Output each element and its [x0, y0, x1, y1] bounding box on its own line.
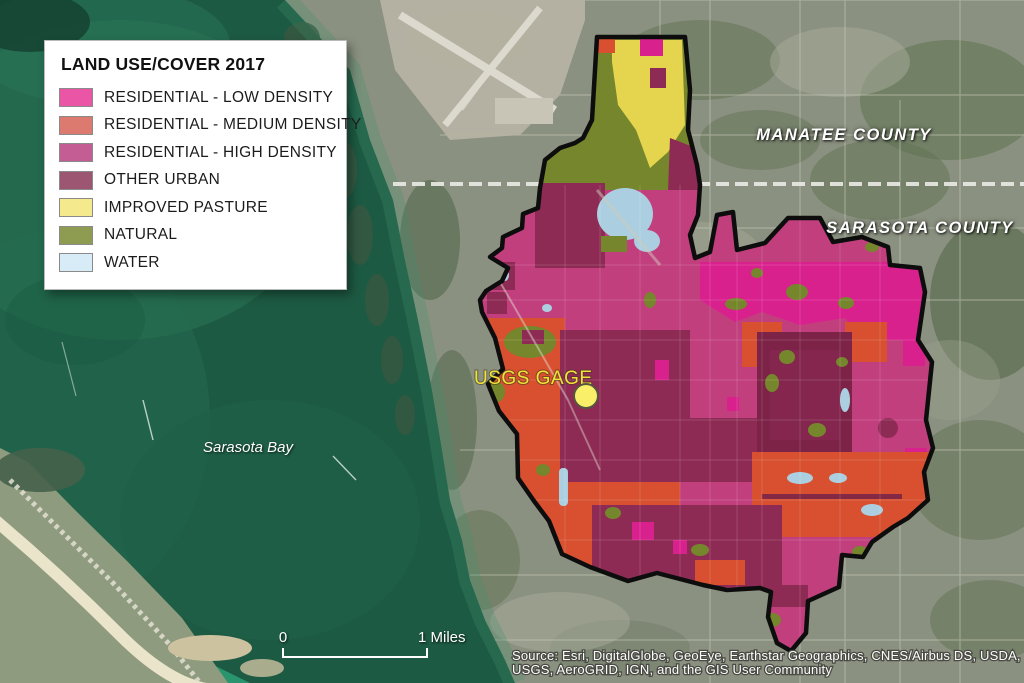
scale-zero-label: 0 — [279, 629, 287, 646]
sandbar — [168, 635, 252, 661]
legend-item-label: RESIDENTIAL - LOW DENSITY — [104, 89, 333, 107]
attribution-line2: USGS, AeroGRID, IGN, and the GIS User Co… — [512, 662, 832, 677]
legend-swatch — [59, 198, 93, 217]
legend-item-water: WATER — [59, 249, 332, 277]
legend-swatch — [59, 171, 93, 190]
legend-item-low-density: RESIDENTIAL - LOW DENSITY — [59, 84, 332, 112]
legend-item-label: NATURAL — [104, 226, 177, 244]
sarasota-bay-label: Sarasota Bay — [203, 439, 295, 456]
attribution-line1: Source: Esri, DigitalGlobe, GeoEye, Eart… — [512, 648, 1021, 663]
legend-item-label: WATER — [104, 254, 160, 272]
legend-swatch — [59, 88, 93, 107]
map-view: MANATEE COUNTY SARASOTA COUNTY Sarasota … — [0, 0, 1024, 683]
legend-item-label: RESIDENTIAL - HIGH DENSITY — [104, 144, 337, 162]
legend-swatch — [59, 253, 93, 272]
legend-item-medium-density: RESIDENTIAL - MEDIUM DENSITY — [59, 112, 332, 140]
legend-title: LAND USE/COVER 2017 — [61, 54, 330, 75]
usgs-gage-label: USGS GAGE — [474, 368, 593, 389]
legend-item-natural: NATURAL — [59, 222, 332, 250]
manatee-county-label: MANATEE COUNTY — [756, 126, 932, 144]
legend: LAND USE/COVER 2017 RESIDENTIAL - LOW DE… — [44, 40, 347, 290]
legend-item-improved-pasture: IMPROVED PASTURE — [59, 194, 332, 222]
sarasota-county-label: SARASOTA COUNTY — [826, 219, 1014, 237]
legend-item-high-density: RESIDENTIAL - HIGH DENSITY — [59, 139, 332, 167]
legend-swatch — [59, 116, 93, 135]
legend-item-other-urban: OTHER URBAN — [59, 167, 332, 195]
legend-item-label: RESIDENTIAL - MEDIUM DENSITY — [104, 116, 362, 134]
legend-item-label: OTHER URBAN — [104, 171, 220, 189]
legend-swatch — [59, 143, 93, 162]
legend-swatch — [59, 226, 93, 245]
scale-miles-label: 1 Miles — [418, 629, 466, 646]
usgs-gage-marker — [574, 384, 598, 408]
legend-item-label: IMPROVED PASTURE — [104, 199, 268, 217]
